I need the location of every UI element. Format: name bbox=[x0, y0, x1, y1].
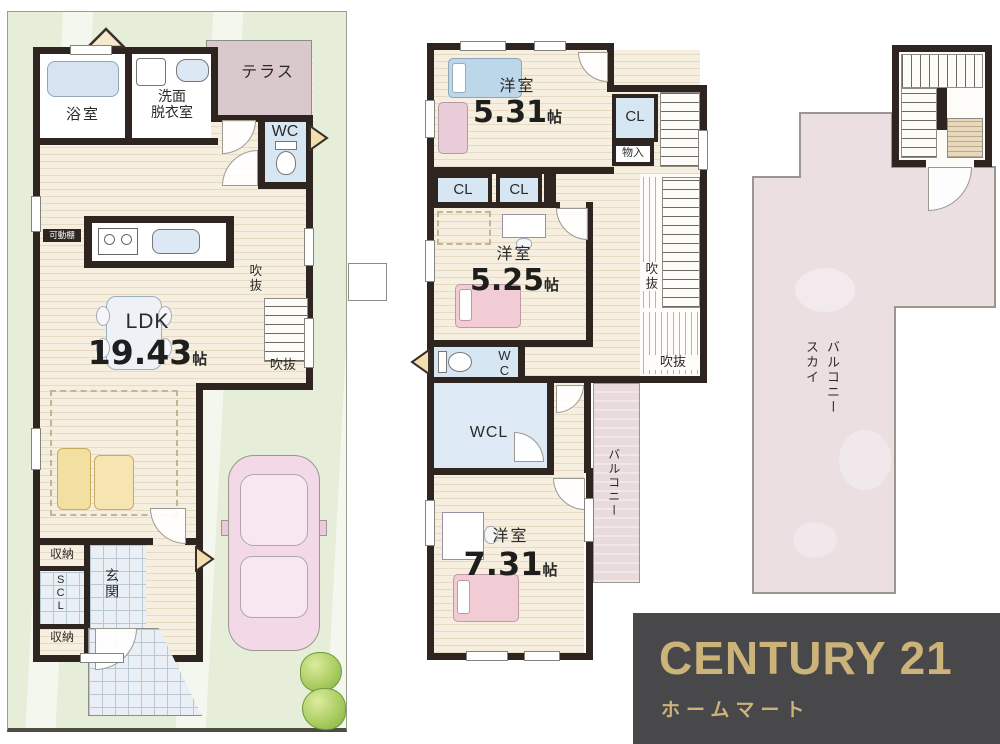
window bbox=[524, 651, 560, 661]
car-mirror bbox=[221, 520, 229, 536]
wall bbox=[132, 138, 218, 145]
wall bbox=[33, 538, 153, 545]
car-windshield bbox=[240, 474, 308, 546]
century21-logo: CENTURY 21 ホームマート bbox=[633, 613, 1000, 744]
void-label-1f-b: 吹抜 bbox=[258, 358, 308, 373]
room-731-unit: 帖 bbox=[542, 562, 557, 579]
room-731-name: 洋室 bbox=[448, 528, 573, 546]
window bbox=[304, 318, 314, 368]
wall bbox=[547, 383, 554, 475]
wall bbox=[427, 167, 614, 174]
wall bbox=[427, 340, 593, 347]
brand-name: CENTURY 21 bbox=[659, 631, 953, 685]
wall bbox=[584, 383, 591, 473]
cl-top-label: CL bbox=[612, 108, 658, 125]
toilet-tank-icon bbox=[438, 351, 447, 373]
room-531-size: 5.31 bbox=[473, 95, 547, 130]
window bbox=[425, 240, 435, 282]
pillow-icon bbox=[457, 580, 470, 614]
window bbox=[534, 41, 566, 51]
wall bbox=[427, 653, 593, 660]
wall bbox=[427, 468, 554, 475]
cl-mid-label: CL bbox=[496, 181, 542, 198]
wall bbox=[258, 122, 265, 189]
wall bbox=[427, 43, 614, 50]
sofa-icon bbox=[57, 448, 91, 510]
room-531-label: 洋室 5.31帖 bbox=[455, 78, 580, 131]
wall bbox=[554, 376, 707, 383]
sky-balcony-line1: スカイ bbox=[802, 340, 821, 415]
bathtub-icon bbox=[47, 61, 119, 97]
wall bbox=[937, 88, 947, 130]
entrance-arrow-icon bbox=[195, 546, 215, 572]
window bbox=[425, 500, 435, 546]
toilet-tank-icon bbox=[275, 141, 297, 150]
bathroom-label: 浴室 bbox=[52, 106, 114, 123]
room-525-name: 洋室 bbox=[452, 246, 577, 264]
ldk-unit: 帖 bbox=[192, 351, 207, 368]
movable-shelf-label: 可動棚 bbox=[43, 229, 81, 242]
wall bbox=[607, 43, 614, 92]
stairs-2f-up bbox=[660, 92, 700, 167]
wall bbox=[33, 624, 84, 629]
bush-icon bbox=[302, 688, 346, 730]
void-label-2f-b: 吹抜 bbox=[648, 355, 698, 370]
kitchen-sink-icon bbox=[152, 229, 200, 254]
washroom-label: 洗面 脱衣室 bbox=[133, 88, 211, 120]
window bbox=[31, 428, 41, 470]
burner-icon bbox=[104, 234, 115, 245]
stairs-3f-side bbox=[901, 88, 937, 158]
toilet-icon bbox=[448, 352, 472, 372]
wall bbox=[33, 138, 132, 145]
window bbox=[466, 651, 508, 661]
floor-plan-sheet: テラス 浴室 洗面 脱衣室 WC 可動棚 bbox=[0, 0, 1000, 744]
wall bbox=[125, 54, 132, 145]
cl-left-label: CL bbox=[434, 181, 492, 198]
wc-label-2f: WC bbox=[496, 348, 511, 378]
room-531-unit: 帖 bbox=[547, 109, 562, 126]
window bbox=[584, 498, 594, 542]
room-525-size: 5.25 bbox=[470, 263, 544, 298]
scl-label: SCL bbox=[54, 574, 67, 613]
storage-hatch-3f bbox=[947, 118, 983, 158]
burner-icon bbox=[121, 234, 132, 245]
wall bbox=[258, 182, 313, 189]
room-531-name: 洋室 bbox=[455, 78, 580, 96]
monoire-label: 物入 bbox=[611, 147, 655, 160]
car-mirror bbox=[319, 520, 327, 536]
stairs-2f-down bbox=[662, 177, 700, 308]
wall bbox=[33, 566, 84, 571]
sink-icon bbox=[176, 59, 209, 82]
room-525-label: 洋室 5.25帖 bbox=[452, 246, 577, 299]
storage-bottom-label: 収納 bbox=[39, 631, 85, 645]
ldk-size: 19.43 bbox=[88, 333, 192, 372]
car-rear-glass bbox=[240, 556, 308, 618]
store-name: ホームマート bbox=[661, 695, 810, 722]
wall bbox=[185, 538, 203, 545]
stairs-1f bbox=[264, 298, 308, 362]
sofa-icon bbox=[94, 455, 134, 510]
terrace-label: テラス bbox=[228, 64, 308, 82]
washroom-label-line1: 洗面 bbox=[158, 88, 186, 104]
window bbox=[698, 130, 708, 170]
window bbox=[70, 45, 112, 55]
room-731-size: 7.31 bbox=[464, 545, 543, 583]
room-731-label: 洋室 7.31帖 bbox=[448, 528, 573, 583]
window bbox=[460, 41, 506, 51]
genkan-label: 玄関 bbox=[104, 568, 120, 600]
stairs-3f-top bbox=[901, 54, 983, 88]
wall bbox=[196, 383, 203, 662]
window bbox=[80, 653, 124, 663]
balcony-label: バルコニー bbox=[606, 448, 620, 518]
wall bbox=[427, 376, 554, 383]
closet-hatch bbox=[437, 211, 491, 245]
storage-top-label: 収納 bbox=[39, 548, 85, 562]
room-525-unit: 帖 bbox=[544, 277, 559, 294]
toilet-icon bbox=[276, 151, 296, 175]
ldk-label: LDK 19.43帖 bbox=[85, 310, 210, 372]
ldk-name: LDK bbox=[85, 310, 210, 334]
wall bbox=[607, 85, 707, 92]
void-label-2f-a: 吹抜 bbox=[643, 262, 657, 291]
washing-machine-icon bbox=[136, 58, 166, 86]
wc-label-1f: WC bbox=[266, 123, 304, 141]
entry-arrow-icon bbox=[309, 125, 329, 151]
sky-balcony-label: スカイ バルコニー bbox=[802, 340, 842, 415]
entry-arrow-icon-2f bbox=[410, 349, 430, 375]
wall bbox=[211, 47, 218, 122]
washroom-label-line2: 脱衣室 bbox=[151, 104, 193, 120]
window bbox=[304, 228, 314, 266]
sky-balcony-line2: バルコニー bbox=[823, 340, 842, 415]
legend-square bbox=[348, 263, 387, 301]
wall bbox=[544, 174, 556, 208]
window bbox=[31, 196, 41, 232]
void-label-1f-a: 吹抜 bbox=[247, 264, 261, 293]
wall bbox=[586, 468, 593, 660]
window bbox=[425, 100, 435, 138]
desk-icon bbox=[502, 214, 546, 238]
wall bbox=[196, 383, 313, 390]
